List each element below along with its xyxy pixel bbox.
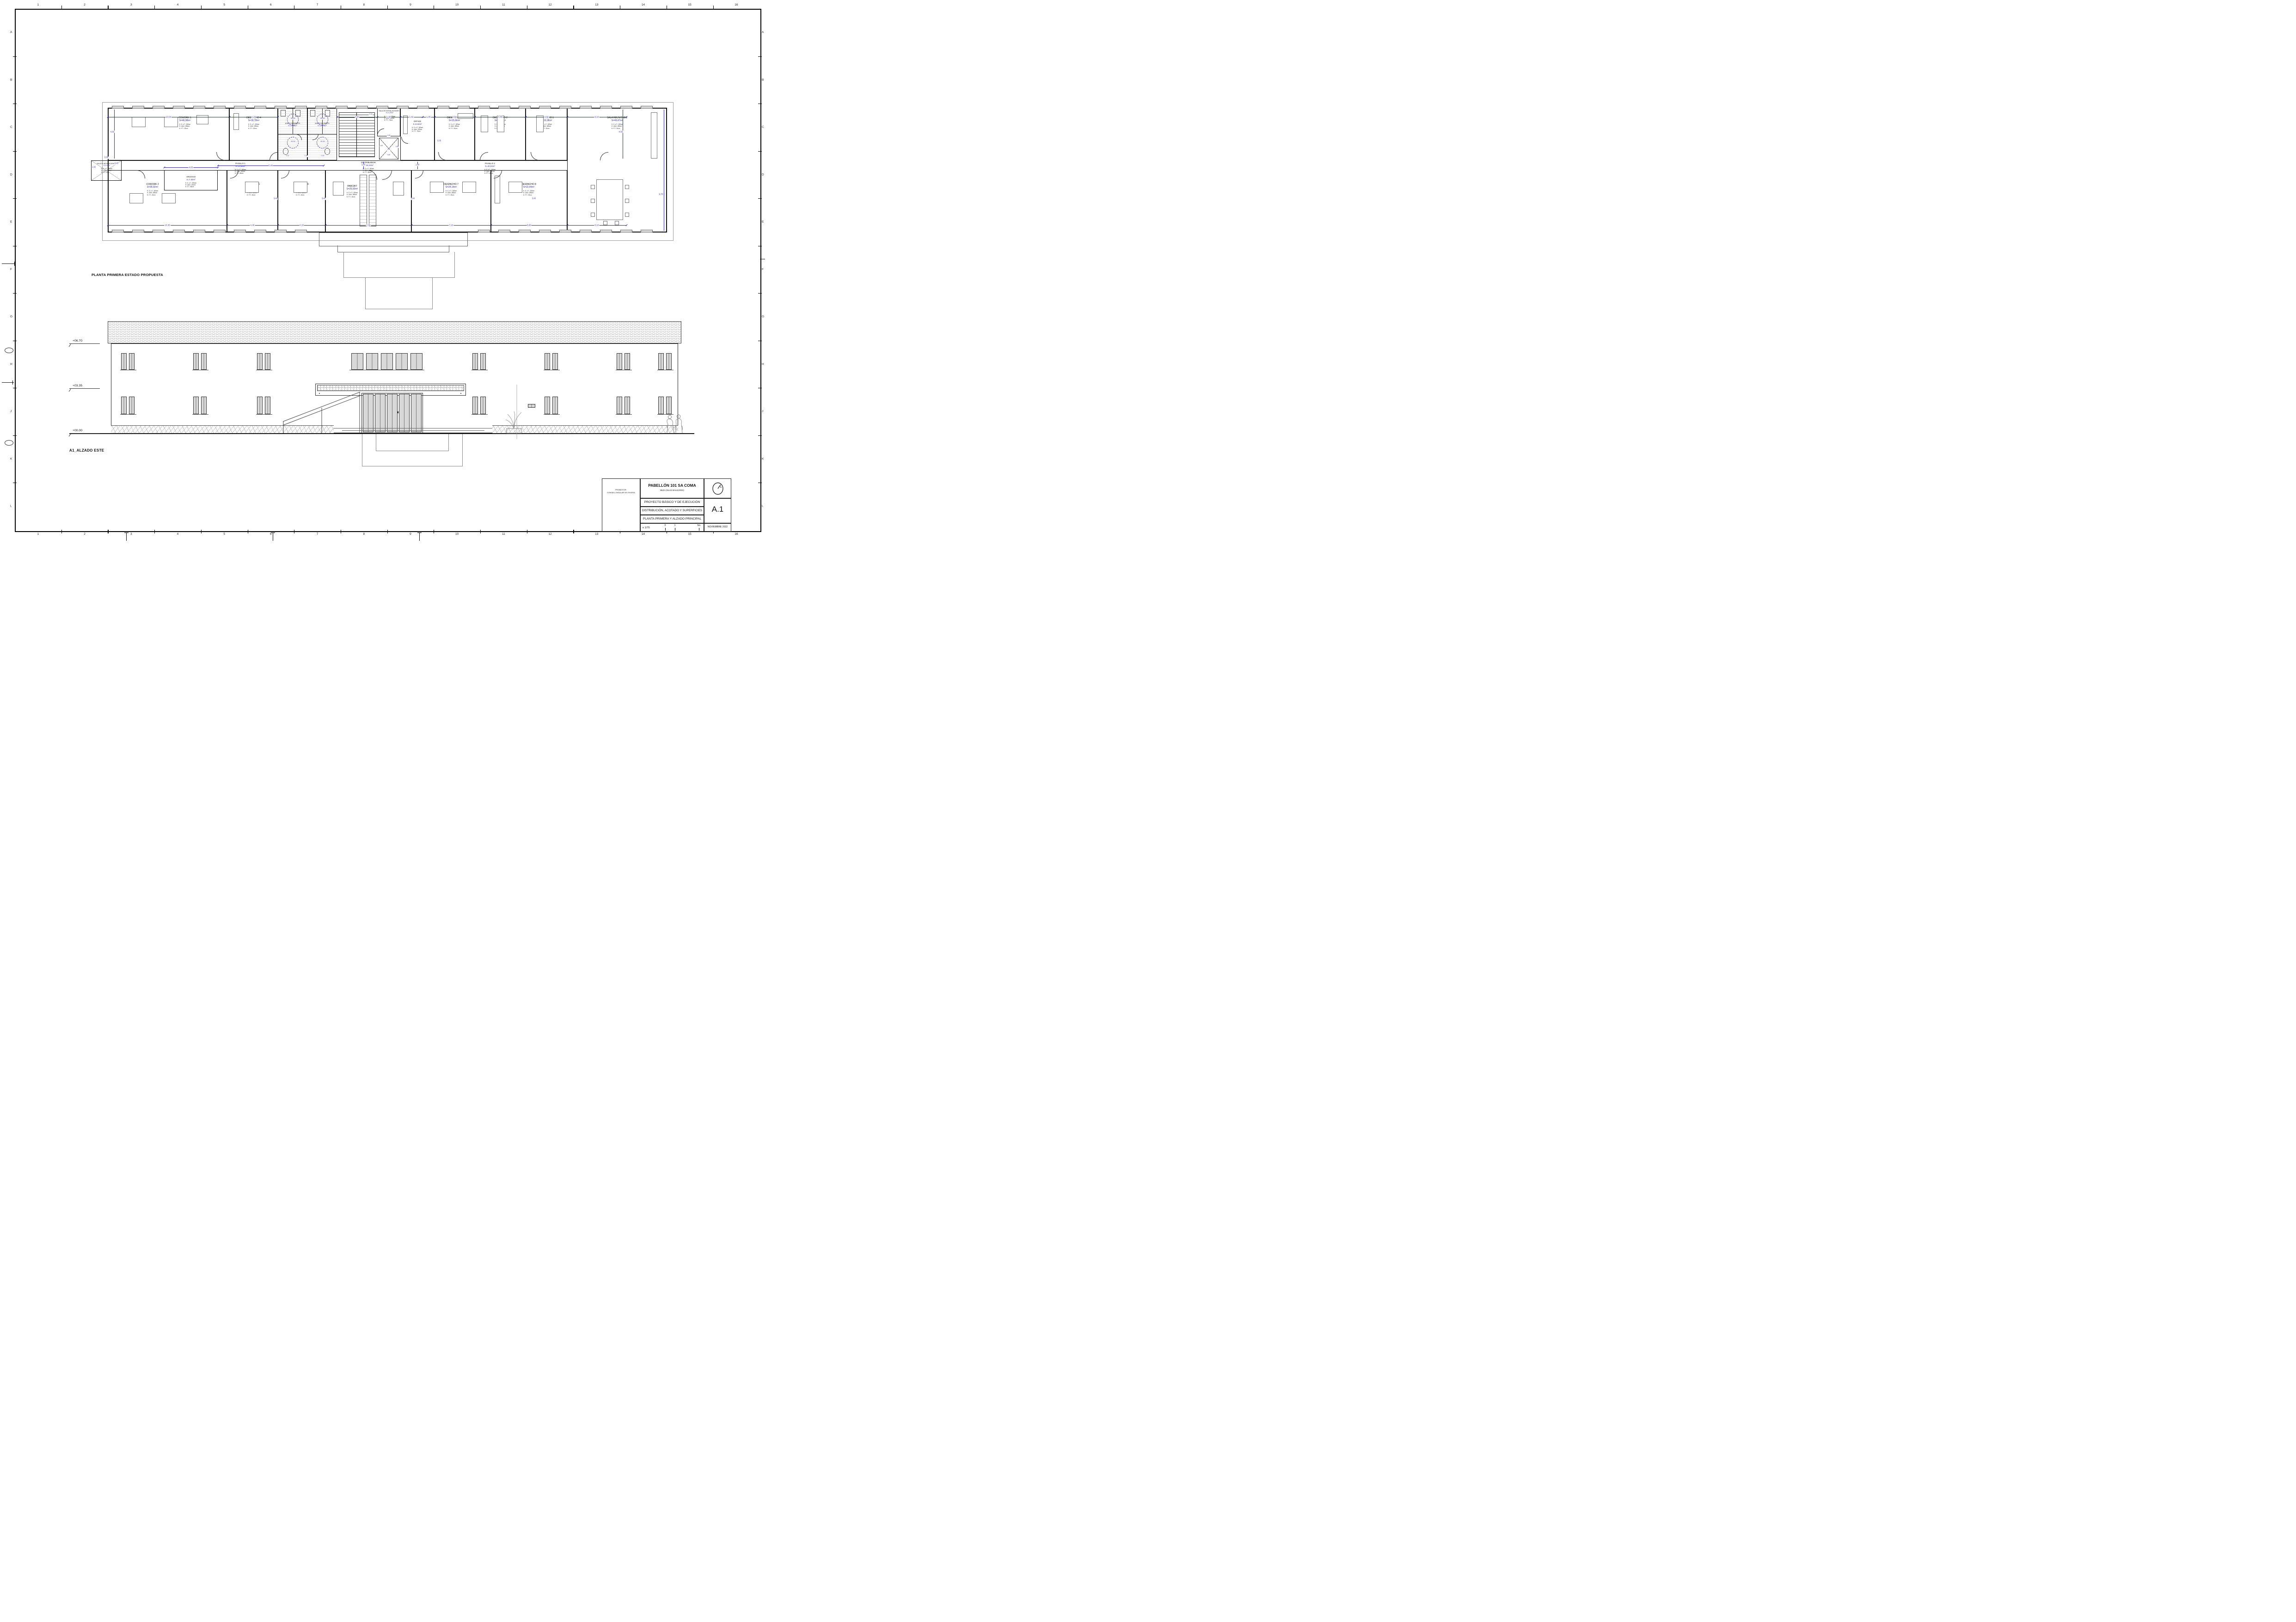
room-area: S=13,55m² xyxy=(285,124,300,127)
grid-tick xyxy=(13,151,17,152)
grid-number: 8 xyxy=(363,3,365,6)
furniture-item xyxy=(294,182,307,193)
dim-label: 3,40 xyxy=(321,198,326,200)
doc-line-3: PLANTA PRIMERA Y ALZADO PRINCIPAL xyxy=(641,517,703,521)
grid-number: 7 xyxy=(317,3,318,6)
grid-tick xyxy=(713,6,714,9)
dim-label: 9,70 xyxy=(659,193,664,195)
plan-window-module xyxy=(153,230,165,233)
plan-window-module xyxy=(478,106,490,109)
dim-label: 1,50 xyxy=(304,155,308,157)
room-height-line: H. Libre: 285cm xyxy=(446,192,457,194)
room-label: ASEO MUJERESS=13,15m² xyxy=(315,122,329,127)
grid-number: 14 xyxy=(642,3,645,6)
chair xyxy=(625,185,629,189)
furniture-item xyxy=(651,112,657,159)
walkway-line xyxy=(343,252,344,277)
grid-number: 16 xyxy=(735,3,738,6)
scale-bar-tick xyxy=(699,528,699,531)
plan-window-module xyxy=(539,230,551,233)
scale-bar-tick xyxy=(675,528,675,531)
room-height-line: H. Libre: 285cm xyxy=(147,192,158,194)
plan-window-module xyxy=(498,106,510,109)
chair xyxy=(591,199,595,203)
grid-tick xyxy=(13,198,17,199)
room-height-line: H. F.T.: 20cm xyxy=(296,194,307,196)
dim-label: 3,40 xyxy=(410,198,415,200)
room-height-line: H. Libre: 285cm xyxy=(248,125,259,127)
grid-number: 12 xyxy=(548,3,551,6)
furniture-item xyxy=(403,116,408,134)
grid-number: 6 xyxy=(270,3,272,6)
plan-window-module xyxy=(173,230,185,233)
plan-window-module xyxy=(173,106,185,109)
plan-window-module xyxy=(437,106,449,109)
room-outline xyxy=(227,170,278,233)
promotor-cell xyxy=(602,478,640,532)
dim-label: 10,30 xyxy=(164,224,171,226)
plan-window-module xyxy=(214,106,226,109)
dim-label: 3,40 xyxy=(273,198,278,200)
furniture-item xyxy=(333,182,344,196)
dim-label: 4,10 xyxy=(299,224,304,226)
plan-window-module xyxy=(275,106,287,109)
grid-tick xyxy=(758,104,762,104)
dim-line xyxy=(114,110,115,159)
room-height-line: H. F.T.: 20cm xyxy=(612,128,623,129)
dim-label: 1,02 xyxy=(286,155,290,157)
room-label: COWORK 2S=35,02m²H. S. a T.: 305cmH. Lib… xyxy=(146,183,159,198)
grid-tick xyxy=(13,56,17,57)
dim-line xyxy=(664,110,664,231)
grid-tick xyxy=(527,6,527,9)
dim-label: 3,50 xyxy=(355,116,360,118)
dim-label: 1,65 xyxy=(395,146,399,148)
grid-tick xyxy=(758,151,762,152)
dim-label: 8,48 xyxy=(268,164,273,166)
room-height-line: H. Libre: 285cm xyxy=(523,192,534,194)
furniture-item xyxy=(129,193,143,203)
porch-outline xyxy=(319,233,468,246)
furniture-item xyxy=(536,116,544,132)
furniture-item xyxy=(462,182,476,193)
grid-tick xyxy=(667,6,667,9)
dim-label: 4,40 xyxy=(498,116,503,118)
room-outline xyxy=(491,170,567,233)
grid-tick xyxy=(758,56,762,57)
room-height-line: H. F.T.: 20cm xyxy=(147,194,158,196)
room-name: PASILLO 1 xyxy=(235,162,246,165)
chair xyxy=(625,213,629,217)
room-area: S=22,44m² xyxy=(521,186,536,189)
walkway-line xyxy=(343,277,455,278)
room-height-line: H. F.T.: 20cm xyxy=(446,194,457,196)
dim-label: 1,60 xyxy=(361,164,366,166)
room-height-info: H. S. a T.: 305cmH. Libre: 285cmH. F.T.:… xyxy=(523,190,534,196)
plan-window-module xyxy=(458,106,470,109)
room-height-info: H. S. a T.: 305cmH. Libre: 230cmH. F.T.:… xyxy=(412,127,423,132)
furniture-item xyxy=(132,117,146,127)
grid-tick xyxy=(13,293,17,294)
plan-window-module xyxy=(295,106,307,109)
room-area: S=18,78m² xyxy=(246,119,261,122)
dim-label: 10,50 xyxy=(165,116,172,118)
promotor-label: PROMOTOR: xyxy=(604,489,638,491)
room-height-info: H. S. a T.: 305cmH. Libre: 285cmH. F.T.:… xyxy=(179,123,190,129)
grid-tick xyxy=(13,104,17,104)
grid-letter: F xyxy=(10,268,12,271)
dim-label: 3,50 xyxy=(452,116,457,118)
dim-label: 7,50 xyxy=(366,224,371,226)
plan-window-module xyxy=(620,106,632,109)
drawing-sheet: 12345678910111213141516 1234567891011121… xyxy=(0,0,765,541)
grid-number: 11 xyxy=(502,3,505,6)
room-area: S=25,50m² xyxy=(347,188,358,190)
room-outline xyxy=(307,108,337,160)
furniture-item xyxy=(430,182,444,193)
room-label: ASEO HOMBRESS=13,55m² xyxy=(285,122,300,127)
project-location: IBIZA (ISLAS BALEARES) xyxy=(642,489,702,491)
staircase-divider xyxy=(356,112,357,157)
plan-title: PLANTA PRIMERA ESTADO PROPUESTA xyxy=(92,273,163,277)
plan-window-module xyxy=(315,106,327,109)
plan-window-module xyxy=(641,230,653,233)
plan-window-module xyxy=(112,230,124,233)
plan-window-module xyxy=(600,106,612,109)
plan-window-module xyxy=(641,106,653,109)
plan-window-module xyxy=(254,106,266,109)
project-cell xyxy=(640,478,704,498)
plan-window-module xyxy=(600,230,612,233)
room-name: PASILLO 2 xyxy=(484,162,496,165)
plan-window-module xyxy=(132,230,144,233)
plan-window-module xyxy=(559,230,571,233)
plan-window-module xyxy=(519,230,531,233)
grid-number: 10 xyxy=(455,3,459,6)
grid-letter: B xyxy=(10,78,12,81)
scale-label: e 1/75 xyxy=(643,526,656,529)
dim-label: 0,90 xyxy=(387,154,391,156)
grid-letter: C xyxy=(10,126,12,129)
plan-window-module xyxy=(132,106,144,109)
grid-number: 3 xyxy=(130,3,132,6)
grid-tick xyxy=(108,6,108,9)
plan-window-module xyxy=(254,230,266,233)
grid-letter: D xyxy=(10,173,12,176)
fold-mark-arrow-right xyxy=(760,259,765,259)
dim-label: 1,05 xyxy=(426,116,431,118)
room-area: S=3,10m² xyxy=(97,165,117,166)
room-height-line: H. F.T.: 20cm xyxy=(347,196,358,198)
dim-label: 4,40 xyxy=(250,224,255,226)
dim-label: 1,60 xyxy=(387,135,391,137)
grid-tick xyxy=(201,6,202,9)
plan-window-module xyxy=(498,230,510,233)
grid-letter: E xyxy=(762,220,764,224)
walkway-line xyxy=(454,252,455,277)
dim-label: 1,92 xyxy=(409,116,414,118)
furniture-item xyxy=(245,182,259,193)
dim-label: 2,59 xyxy=(104,157,109,159)
room-height-line: H. F.T.: 20cm xyxy=(523,194,534,196)
dim-label: 0,45 xyxy=(114,163,119,165)
room-height-info: H. S. a T.: 305cmH. Libre: 285cmH. F.T.:… xyxy=(147,190,158,196)
dim-label: 0,45 xyxy=(321,155,325,157)
plan-window-module xyxy=(234,230,246,233)
room-height-info: H. S. a T.: 305cmH. Libre: 285cmH. F.T.:… xyxy=(446,190,457,196)
room-label: PARCBITS=25,50m²H. S. a T.: 305cmH. Libr… xyxy=(347,185,358,200)
plan-window-module xyxy=(193,230,205,233)
chair xyxy=(615,221,619,225)
dim-label: 4,20 xyxy=(251,116,256,118)
room-outline xyxy=(411,170,491,233)
room-area: S=35,02m² xyxy=(146,186,159,189)
dim-label: 1,98 xyxy=(386,116,392,118)
dim-label: 2,15 xyxy=(369,114,373,116)
plan-window-module xyxy=(193,106,205,109)
dim-label: 1,10 xyxy=(387,149,391,151)
dim-label: 5,10 xyxy=(594,224,600,226)
grid-tick xyxy=(620,6,620,9)
room-area: S=8,64m² xyxy=(412,123,423,126)
grid-tick xyxy=(154,6,155,9)
furniture-item xyxy=(458,113,473,119)
room-label: DESPACHO 7S=24,14m²H. S. a T.: 305cmH. L… xyxy=(444,183,459,198)
room-height-line: H. Libre: 285cm xyxy=(179,125,190,127)
room-height-line: H. F.T.: 75cm xyxy=(412,130,423,132)
room-outline xyxy=(278,108,307,160)
grid-letter: C xyxy=(762,126,764,129)
grid-tick xyxy=(13,246,17,246)
plan-window-module xyxy=(417,106,429,109)
room-area: S=4,25m² xyxy=(379,112,400,114)
room-height-line: H. F.T.: 20cm xyxy=(247,194,258,196)
clock-icon xyxy=(711,482,724,495)
furniture-item xyxy=(233,113,239,130)
room-label: COWORK 1S=46,98m²H. S. a T.: 305cmH. Lib… xyxy=(178,116,191,132)
scale-tick-5m: 5m xyxy=(696,525,702,527)
dim-label: 5,10 xyxy=(594,116,600,118)
scale-tick-1: 1 xyxy=(673,525,677,527)
plan-window-module xyxy=(234,106,246,109)
room-height-line: H. F.T.: 20cm xyxy=(179,128,190,129)
dim-label: 4,50 xyxy=(618,130,624,133)
grid-letter: B xyxy=(762,78,764,81)
grid-number: 1 xyxy=(37,3,39,6)
promotor-name: CONSELL INSULAR DE EIVISSA xyxy=(603,492,639,494)
dim-label: 3,40 xyxy=(532,198,536,200)
corridor-wall-north xyxy=(108,160,567,161)
grid-tick xyxy=(758,246,762,246)
grid-tick xyxy=(248,6,248,9)
room-area: S=13,15m² xyxy=(315,124,329,127)
furniture-item xyxy=(196,115,208,124)
grid-number: 2 xyxy=(84,3,86,6)
room-height-line: H. F.T.: 20cm xyxy=(449,128,460,129)
plan-window-module xyxy=(376,106,388,109)
dim-label: 7,10 xyxy=(449,224,454,226)
furniture-item xyxy=(393,182,404,196)
plan-window-module xyxy=(519,106,531,109)
grid-tick xyxy=(573,6,574,9)
dim-line xyxy=(623,110,623,159)
grid-number: 4 xyxy=(177,3,179,6)
plan-window-module xyxy=(580,106,592,109)
chair xyxy=(591,185,595,189)
plan-window-module xyxy=(559,106,571,109)
grid-letter: D xyxy=(762,173,764,176)
plan-window-module xyxy=(620,230,632,233)
furniture-item xyxy=(495,176,500,203)
grid-tick xyxy=(758,293,762,294)
elevation-title: A1_ALZADO ESTE xyxy=(69,448,104,453)
dim-label: 3,35 xyxy=(437,140,441,142)
sheet-code: A.1 xyxy=(704,505,731,514)
fold-mark-arrow-tip xyxy=(14,262,15,266)
furniture-item xyxy=(596,179,623,220)
room-height-line: H. Libre: 285cm xyxy=(612,125,623,127)
doc-line-2: DISTRIBUCIÓN, ACOTADO Y SUPERFICIES xyxy=(641,509,703,512)
fold-mark-arrow xyxy=(2,263,16,264)
plan-window-module xyxy=(336,106,348,109)
staircase xyxy=(339,112,375,157)
chair xyxy=(591,213,595,217)
grid-tick xyxy=(480,6,481,9)
grid-number: 5 xyxy=(223,3,225,6)
room-height-line: H. Libre: 285cm xyxy=(347,194,358,196)
room-height-info: H. S. a T.: 305cmH. Libre: 285cmH. F.T.:… xyxy=(248,123,259,129)
grid-tick xyxy=(758,198,762,199)
room-label: DESPACHO 8S=22,44m²H. S. a T.: 305cmH. L… xyxy=(521,183,536,198)
grid-tick xyxy=(387,6,388,9)
grid-number: 13 xyxy=(595,3,598,6)
grid-tick xyxy=(294,6,294,9)
date-text: NOVIEMBRE 2022 xyxy=(704,526,731,529)
dim-label: 3,60 xyxy=(544,116,549,118)
dim-label: 1,40 xyxy=(380,145,383,147)
room-area: S=15,66m² xyxy=(447,119,462,122)
dim-label: 1,60 xyxy=(415,164,420,166)
dim-label: 4,63 xyxy=(189,166,194,168)
room-area: S=20,04m² xyxy=(484,165,496,168)
plan-window-module xyxy=(478,230,490,233)
grid-letter: E xyxy=(10,220,12,224)
room-outline xyxy=(278,170,325,233)
plan-window-module xyxy=(275,230,287,233)
dim-label: 6,60 xyxy=(527,224,532,226)
grid-tick xyxy=(61,6,62,9)
chair xyxy=(625,199,629,203)
grid-letter: A xyxy=(10,31,12,34)
furniture-item xyxy=(164,117,178,127)
room-area: S=46,98m² xyxy=(178,119,191,122)
plan-window-module xyxy=(580,230,592,233)
scale-tick-0: 0 xyxy=(663,525,667,527)
shelving-unit xyxy=(360,175,367,226)
grid-tick xyxy=(434,6,434,9)
grid-letter: A xyxy=(762,31,764,34)
plan-window-module xyxy=(539,106,551,109)
grid-number: 15 xyxy=(688,3,692,6)
shelving-unit xyxy=(369,175,376,226)
plan-window-module xyxy=(295,230,307,233)
plan-window-module xyxy=(356,106,368,109)
plan-window-module xyxy=(397,106,409,109)
room-height-line: H. F.T.: 75cm xyxy=(384,119,395,121)
room-height-info: H. S. a T.: 305cmH. Libre: 285cmH. F.T.:… xyxy=(347,192,358,197)
room-height-info: H. S. a T.: 305cmH. Libre: 285cmH. F.T.:… xyxy=(449,123,460,129)
furniture-item xyxy=(508,182,522,193)
room-area: S=49,47m² xyxy=(607,119,627,122)
room-area: S=24,14m² xyxy=(444,186,459,189)
room-label: SALA REUNIONESS=49,47m²H. S. a T.: 305cm… xyxy=(607,116,627,132)
room-label: DESPACHO 4S=18,78m²H. S. a T.: 305cmH. L… xyxy=(246,116,261,132)
plan-window-module xyxy=(153,106,165,109)
plan-window-module xyxy=(112,106,124,109)
dim-label: 4,50 xyxy=(110,130,115,133)
scale-bar-tick xyxy=(665,528,666,531)
porch-step xyxy=(337,245,449,252)
project-title: PABELLÓN 101 SA COMA xyxy=(642,484,702,488)
chair xyxy=(603,221,607,225)
plan-window-module xyxy=(214,230,226,233)
grid-number: 9 xyxy=(410,3,411,6)
furniture-item xyxy=(162,193,176,203)
dim-label: 1,32 xyxy=(92,166,96,169)
grid-letter: F xyxy=(762,268,764,271)
grid-tick xyxy=(341,6,341,9)
doc-line-1: PROYECTO BÁSICO Y DE EJECUCIÓN xyxy=(641,501,703,504)
room-label: OFFICES=8,64m²H. S. a T.: 305cmH. Libre:… xyxy=(412,120,423,135)
room-height-line: H. Libre: 285cm xyxy=(449,125,460,127)
room-height-line: H. F.T.: 20cm xyxy=(248,128,259,129)
furniture-item xyxy=(481,116,488,132)
room-height-info: H. S. a T.: 305cmH. Libre: 285cmH. F.T.:… xyxy=(612,123,623,129)
